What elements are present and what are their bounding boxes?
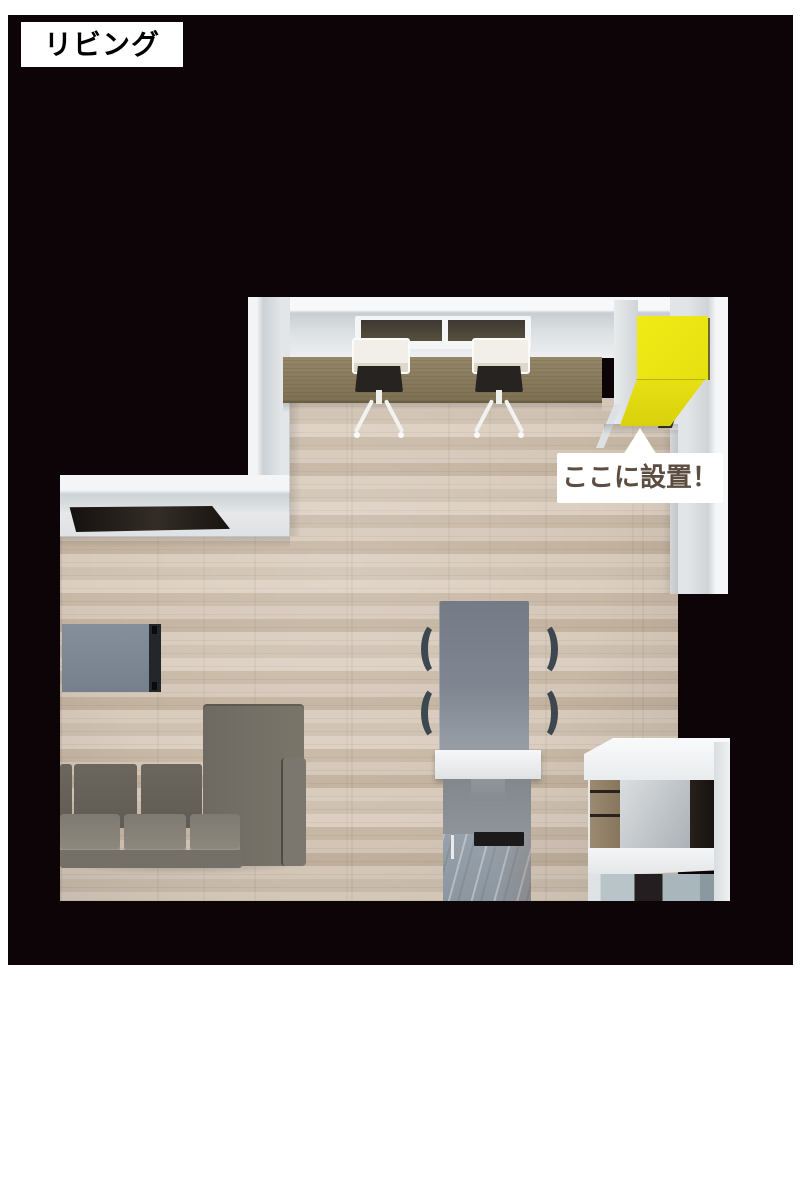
- callout-bubble: ここに設置！: [557, 453, 723, 503]
- dining-chair: [528, 622, 558, 676]
- office-chair-right: [472, 338, 526, 442]
- dining-chair: [528, 686, 558, 740]
- office-chair-leg: [354, 399, 374, 433]
- kitchen-counter-top: [584, 738, 730, 780]
- tv-board-knob: [152, 682, 157, 690]
- office-chair-caster: [398, 432, 404, 438]
- kitchen-lower-shelf: [588, 848, 716, 876]
- tv-board: [62, 624, 149, 692]
- office-chair-leg: [384, 399, 404, 433]
- wall-tv-screen: [68, 506, 230, 532]
- dining-table: [439, 601, 529, 752]
- office-chair-leg: [474, 399, 494, 433]
- sofa-seat-cushion: [190, 814, 240, 852]
- sofa-seat-cushion: [124, 814, 186, 852]
- kitchen-interior-shadow: [686, 776, 716, 854]
- office-chair-caster: [474, 432, 480, 438]
- callout-text: ここに設置！: [562, 463, 718, 493]
- wing-wall-shadow: [60, 536, 290, 548]
- kitchen-glass-doors: [588, 874, 714, 901]
- kitchen-side-panel: [714, 742, 730, 901]
- highlight-unit-top: [637, 316, 708, 380]
- kitchen-cabinet-handle: [590, 814, 622, 817]
- room-render: ここに設置！: [0, 0, 800, 965]
- office-chair-caster: [354, 432, 360, 438]
- office-chair-post: [376, 390, 382, 404]
- kitchen-cabinet-handle: [590, 790, 622, 793]
- office-chair-cushion: [355, 366, 403, 392]
- sofa-front-skirt: [60, 850, 242, 868]
- island-pillar: [471, 779, 505, 801]
- left-wall-shadow: [289, 398, 301, 536]
- office-chair-left: [352, 338, 406, 442]
- office-chair-cushion: [475, 366, 523, 392]
- kitchen-appliance: [620, 775, 690, 853]
- sofa-seat-cushion: [60, 814, 120, 852]
- office-chair-leg: [504, 399, 524, 433]
- island-sink-slot: [474, 832, 524, 846]
- island-handle: [451, 835, 454, 859]
- desk-counter: [283, 357, 602, 403]
- callout-pointer: [623, 428, 657, 455]
- page: ここに設置！ リビング: [0, 0, 800, 1200]
- sofa-armrest: [281, 758, 306, 866]
- room-label-text: リビング: [44, 28, 160, 61]
- room-label: リビング: [21, 22, 183, 67]
- photo-backdrop: ここに設置！: [8, 15, 793, 965]
- island-counter-top: [435, 750, 541, 779]
- office-chair-post: [496, 390, 502, 404]
- office-chair-caster: [518, 432, 524, 438]
- tv-board-knob: [152, 626, 157, 634]
